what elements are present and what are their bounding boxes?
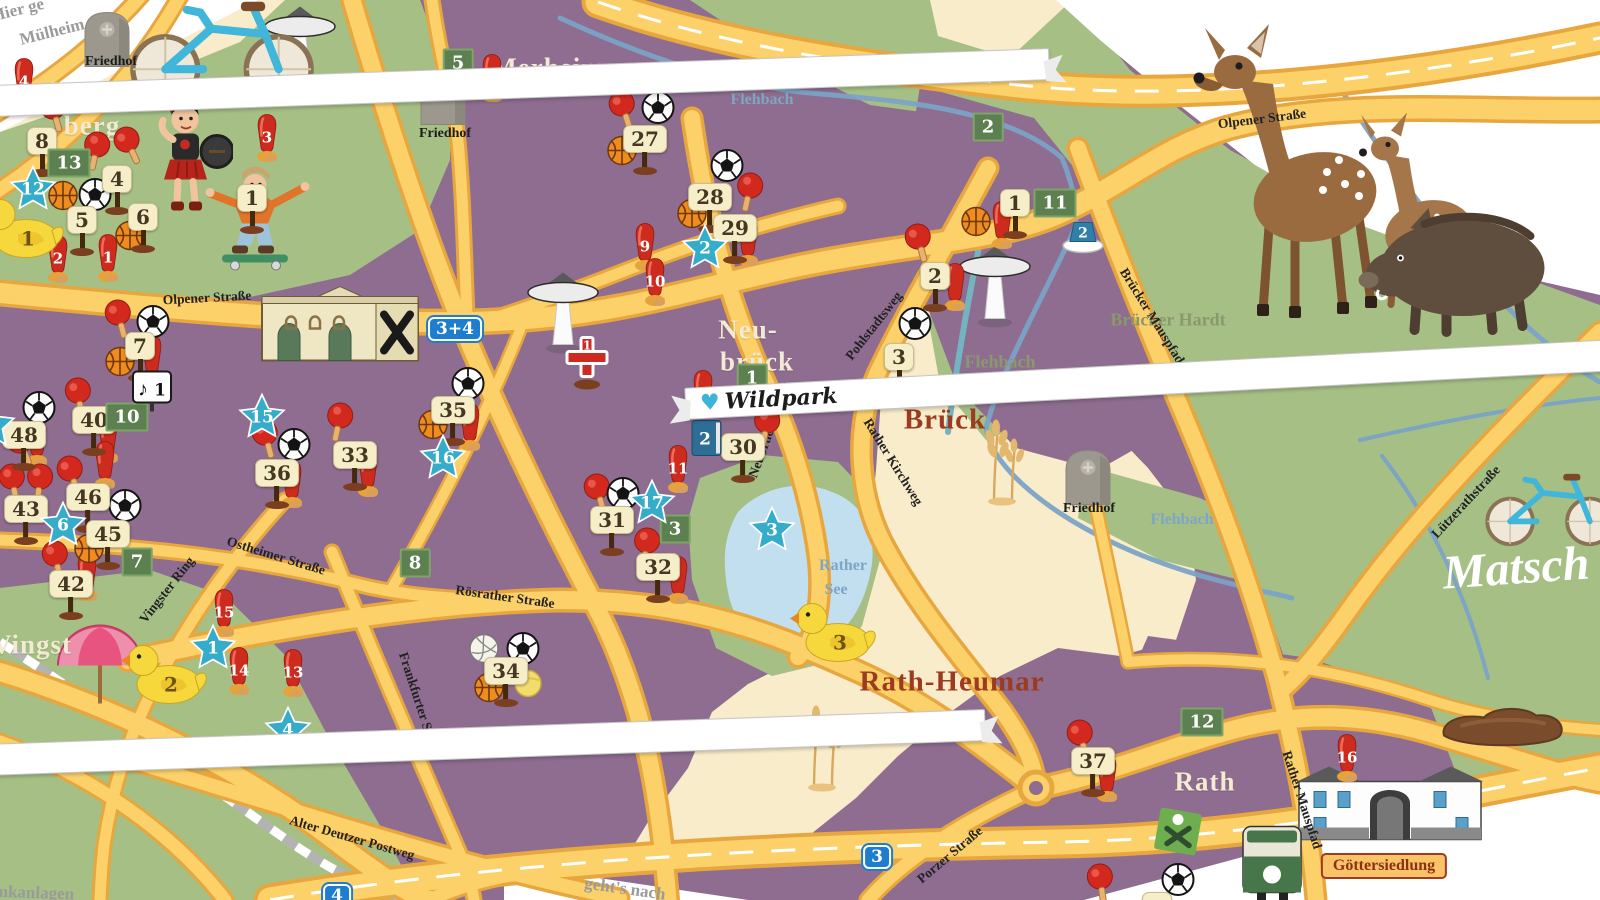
water-label: Rather [819,557,867,575]
svg-text:1: 1 [103,249,113,267]
mud-patch-icon [1432,696,1572,761]
sign-base [1081,789,1105,797]
mud-patch-icon [1432,696,1572,756]
location-sign-27: 27 [623,125,667,175]
playground-icon [1148,802,1208,862]
svg-text:3: 3 [833,631,847,655]
first-aid-marker-1: 1 [560,333,614,396]
star-badge-4: 4 [0,400,18,457]
sign-base [646,595,670,603]
water-label: Flehbach [1150,511,1213,529]
cone-marker-icon: 13 [278,647,308,701]
table-tennis-paddle-icon [900,222,936,266]
cemetery-label: Friedhof [1063,501,1115,517]
sign-number: 37 [1071,747,1115,775]
sign-base [12,463,36,471]
sign-base [923,304,947,312]
cone-marker-3: 3 [252,112,282,171]
first-aid-cross-icon: 1 [560,333,614,391]
banner-tail [670,396,691,425]
green-number-sign-12: 12 [1180,708,1223,737]
tram-icon [1239,825,1305,900]
sign-base [96,562,120,570]
svg-text:2: 2 [1078,226,1088,242]
wild-boar-icon [1355,202,1550,342]
sign-number: 1 [237,184,267,212]
sign-number: 1 [1000,189,1030,217]
duck-icon: 3 [788,597,876,667]
music-note-sign-icon: ♪1 [131,370,173,414]
location-sign-1: 1 [1000,189,1030,239]
sign-base [70,248,94,256]
water-label: Flehbach [730,91,793,109]
green-number-sign-7: 7 [122,548,153,577]
location-sign-42: 42 [49,570,93,620]
cone-marker-13: 13 [278,647,308,706]
banner-label: Wildpark [724,383,838,415]
district-label: Rath-Heumar [860,666,1045,699]
star-badge-6: 6 [37,500,89,557]
svg-text:9: 9 [640,238,650,256]
illustrated-city-map: Höhen-bergMerheimNeu-brückVingstOstheimR… [0,0,1600,900]
cone-marker-icon: 16 [1332,732,1362,786]
green-number-sign-8: 8 [400,549,431,578]
building-name-plaque: Göttersiedlung [1321,853,1447,879]
table-tennis-paddle-icon [322,401,358,445]
sign-base [731,475,755,483]
svg-text:2: 2 [164,673,178,697]
cone-marker-10: 10 [640,256,670,315]
street-label: Olpener Straße [162,288,251,309]
street-label: Alter Deutzer Postweg [288,813,417,864]
svg-text:1: 1 [21,227,35,251]
sign-number: 5 [67,206,97,234]
cone-marker-icon: 10 [640,256,670,310]
sign-number: 2 [920,262,950,290]
book-marker-2: 2 [688,417,726,466]
soccer-ball-icon [107,488,143,524]
street-label: Rösrather Straße [454,582,555,612]
location-sign-32: 32 [636,553,680,603]
route-sign-4: 4 [323,884,351,900]
cone-marker-icon: 1 [93,232,123,286]
heart-icon: ♥ [699,389,720,416]
sign-number [1142,892,1172,900]
sign-number: 33 [333,441,377,469]
sign-base [600,548,624,556]
street-label: Ostheimer Straße [225,533,327,578]
map-edge-text: geht's nach [583,873,667,900]
star-badge-3: 3 [746,505,798,562]
cone-marker-1: 1 [93,232,123,291]
svg-text:♪: ♪ [138,379,148,401]
sign-number: 4 [102,165,132,193]
sign-base [131,245,155,253]
cemetery-label: Friedhof [85,54,137,70]
sign-number: 27 [623,125,667,153]
cemetery-label: Friedhof [419,126,471,142]
green-number-sign-11: 11 [1033,189,1076,218]
cone-marker-icon: 3 [252,112,282,166]
svg-text:3: 3 [262,129,272,147]
svg-text:1: 1 [583,339,591,353]
marker-layer: Höhen-bergMerheimNeu-brückVingstOstheimR… [0,0,1600,900]
swim-cap-marker-2: 2 [1060,219,1106,260]
location-sign-37: 37 [1071,747,1115,797]
svg-text:11: 11 [668,460,689,478]
district-label: Brück [904,404,986,437]
district-label: Neu- [718,315,778,346]
sign-base [265,501,289,509]
location-sign-33: 33 [333,441,377,491]
location-sign-blank [1142,892,1172,900]
wild-boar-icon [1355,202,1550,337]
location-sign-1: 1 [237,184,267,234]
table-tennis-paddle-icon [1082,862,1118,900]
chapel-illustration [258,285,422,372]
playground-icon [1148,802,1208,867]
star-badge-12: 12 [7,164,59,221]
sign-number: 6 [128,203,158,231]
sign-base [82,448,106,456]
banner-tail [979,716,1003,747]
location-sign-6: 6 [128,203,158,253]
location-sign-2: 2 [920,262,950,312]
map-edge-text: Hier ge [0,0,46,26]
sign-number: 3 [884,343,914,371]
script-label: Matsch [1441,535,1591,600]
cone-marker-16: 16 [1332,732,1362,791]
swim-cap-marker-icon: 2 [1060,219,1106,255]
route-sign-3+4: 3+4 [428,317,482,341]
sign-number: 36 [255,459,299,487]
duck-marker-3: 3 [788,597,876,672]
book-marker-icon: 2 [688,417,726,461]
sign-number: 45 [86,520,130,548]
location-sign-34: 34 [484,657,528,707]
table-tennis-paddle-icon [1082,862,1118,900]
music-sign-1: ♪1 [131,370,173,419]
svg-text:10: 10 [645,273,666,291]
star-badge-16: 16 [417,433,469,490]
sign-base [105,207,129,215]
sign-number: 42 [49,570,93,598]
tram-icon [1239,825,1305,900]
svg-text:13: 13 [283,664,304,682]
map-edge-text: mkanlagen [0,882,74,900]
sign-base [14,537,38,545]
sign-number: 32 [636,553,680,581]
sign-number: 7 [125,332,155,360]
star-badge-2: 2 [679,223,731,280]
sign-base [494,699,518,707]
sign-number: 30 [721,433,765,461]
gravestone-icon [1058,445,1118,507]
svg-text:1: 1 [154,381,166,401]
basketball-icon [960,206,992,243]
sign-base [240,226,264,234]
sign-base [1003,231,1027,239]
district-label: Rath [1174,767,1235,798]
star-badge-17: 17 [626,478,678,535]
sign-number: 28 [688,183,732,211]
sign-number: 34 [484,657,528,685]
soccer-ball-icon [709,148,745,184]
svg-text:2: 2 [699,430,711,450]
sign-base [59,612,83,620]
green-number-sign-2: 2 [973,113,1004,142]
sign-base [633,167,657,175]
gate-building-illustration [1294,762,1486,863]
street-label: Porzer Straße [914,823,986,887]
district-label: Vingst [0,630,72,661]
sign-number: 35 [431,396,475,424]
star-badge-15: 15 [236,392,288,449]
table-tennis-paddle-icon [109,125,145,169]
star-badge-1: 1 [187,623,239,680]
banner-tail [1043,55,1067,86]
basketball-icon [960,206,992,238]
svg-text:16: 16 [1337,749,1358,767]
svg-text:15: 15 [214,604,235,622]
location-sign-36: 36 [255,459,299,509]
sign-base [343,483,367,491]
location-sign-30: 30 [721,433,765,483]
chapel-illustration [258,285,422,367]
soccer-ball-icon [640,90,676,126]
route-sign-3: 3 [863,845,891,869]
